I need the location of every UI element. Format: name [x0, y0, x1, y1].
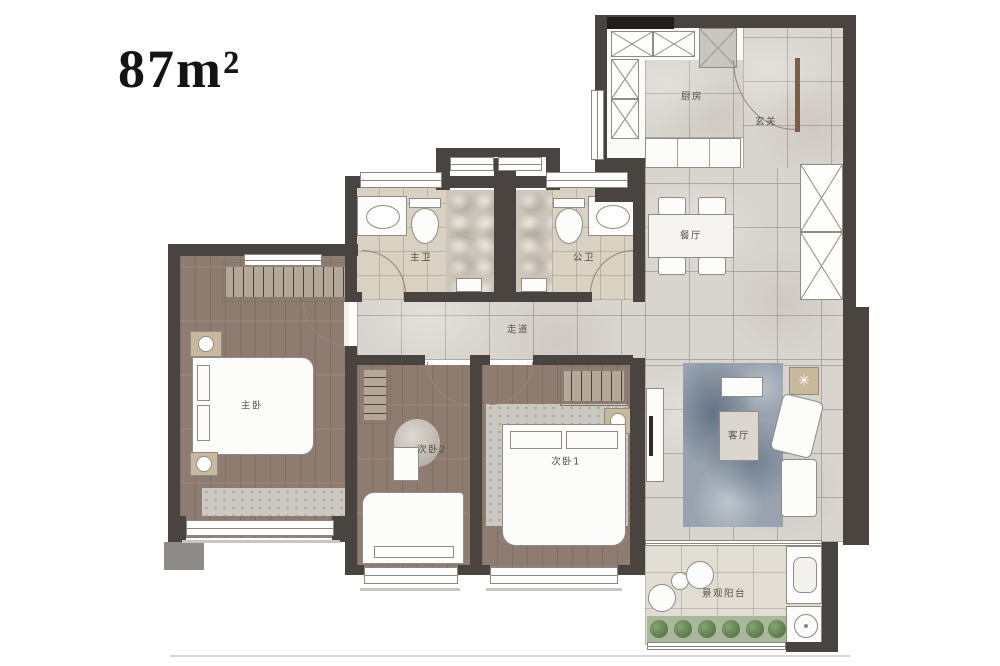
pillow	[566, 431, 618, 449]
room-label-corridor: 走道	[507, 325, 529, 335]
lamp-icon	[196, 456, 212, 472]
washing-machine	[786, 606, 822, 644]
toilet-tank	[409, 198, 441, 208]
plant-pot: ✳	[789, 367, 819, 395]
room-label-balcony: 景观阳台	[702, 589, 746, 599]
kitchen-cabinet	[611, 59, 639, 99]
dining-chair	[658, 257, 686, 275]
balcony-stool	[648, 584, 676, 612]
sofa-seat	[781, 459, 817, 517]
balcony-stool	[686, 561, 714, 589]
area-title: 87m²	[118, 38, 241, 100]
bedroom2-wardrobe	[359, 366, 391, 424]
lamp-icon	[198, 336, 214, 352]
basin-icon	[793, 557, 817, 593]
bush-icon	[746, 620, 764, 638]
window-sill	[182, 540, 340, 543]
pillow	[197, 405, 210, 441]
wall	[168, 516, 186, 542]
room-label-living: 客厅	[728, 431, 750, 441]
room-label-bedroom2: 次卧2	[417, 445, 447, 455]
balcony-rail	[647, 642, 786, 650]
shower-drain	[521, 278, 547, 292]
dining-chair	[658, 197, 686, 215]
pillow	[197, 365, 210, 401]
washer-dot	[804, 624, 808, 628]
bush-icon	[674, 620, 692, 638]
wall	[436, 148, 560, 157]
bush-icon	[722, 620, 740, 638]
room-label-entry: 玄关	[755, 117, 777, 127]
floor-plan: 87m² ✳	[0, 0, 1000, 666]
bush-icon	[698, 620, 716, 638]
room-label-master-bath: 主卫	[410, 253, 432, 263]
wall	[345, 176, 357, 302]
fridge	[699, 28, 737, 68]
bay-window	[364, 567, 458, 584]
room-label-master-bedroom: 主卧	[241, 401, 263, 411]
wall	[843, 15, 856, 307]
bay-window	[490, 567, 618, 584]
balcony-door-glass	[645, 540, 822, 546]
wall	[843, 307, 869, 545]
basin-icon	[366, 205, 400, 229]
wall	[822, 542, 838, 646]
kitchen-cabinet	[653, 31, 695, 57]
corridor-floor	[357, 300, 645, 360]
room-label-guest-bath: 公卫	[573, 253, 595, 263]
entry-door-leaf	[795, 58, 800, 132]
bush-icon	[650, 620, 668, 638]
room-label-bedroom1: 次卧1	[551, 457, 581, 467]
shoe-cabinet	[800, 164, 843, 232]
ottoman	[721, 377, 763, 397]
window	[498, 157, 542, 171]
wall	[345, 565, 364, 575]
bedroom2-desk	[393, 447, 419, 481]
wall	[630, 358, 645, 568]
basin-icon	[596, 205, 630, 229]
window	[591, 90, 604, 160]
wall	[494, 158, 516, 302]
wall	[345, 355, 425, 365]
wall	[618, 565, 645, 575]
kitchen-counter	[645, 138, 741, 168]
pillow	[510, 431, 562, 449]
wall	[458, 565, 490, 575]
kitchen-cabinet	[611, 31, 653, 57]
nightstand	[190, 452, 218, 476]
wall	[470, 355, 490, 365]
window	[450, 157, 494, 171]
shower-drain	[456, 278, 482, 292]
bay-window	[186, 520, 334, 536]
flower-icon: ✳	[798, 373, 810, 389]
wall	[533, 355, 633, 365]
room-label-dining: 餐厅	[680, 231, 702, 241]
bathroom-sink	[357, 196, 407, 236]
bathroom-sink	[588, 196, 636, 236]
bedroom1-wardrobe	[560, 366, 628, 406]
toilet-tank	[553, 198, 585, 208]
wall	[600, 17, 674, 29]
tv-icon	[649, 416, 653, 456]
bush-icon	[768, 620, 786, 638]
dining-chair	[698, 257, 726, 275]
pillow	[374, 546, 454, 558]
nightstand	[190, 331, 222, 357]
kitchen-cabinet	[611, 99, 639, 139]
window-sill	[360, 588, 460, 591]
wall	[168, 244, 180, 540]
window-sill	[486, 588, 622, 591]
wall	[345, 292, 362, 302]
wall	[404, 292, 592, 302]
shoe-cabinet	[800, 232, 843, 300]
master-door-leaf	[344, 302, 349, 346]
wall	[786, 642, 838, 652]
wall	[634, 292, 645, 302]
dining-chair	[698, 197, 726, 215]
window	[360, 172, 442, 188]
room-label-kitchen: 厨房	[681, 92, 703, 102]
master-wardrobe	[222, 262, 354, 302]
window-bench	[202, 488, 348, 516]
wall	[332, 516, 357, 542]
wall	[633, 176, 645, 302]
window	[244, 254, 322, 266]
base-line	[170, 655, 850, 657]
window	[546, 172, 628, 188]
wall	[470, 365, 482, 565]
wall-stub	[164, 542, 204, 570]
laundry-sink	[786, 546, 822, 604]
